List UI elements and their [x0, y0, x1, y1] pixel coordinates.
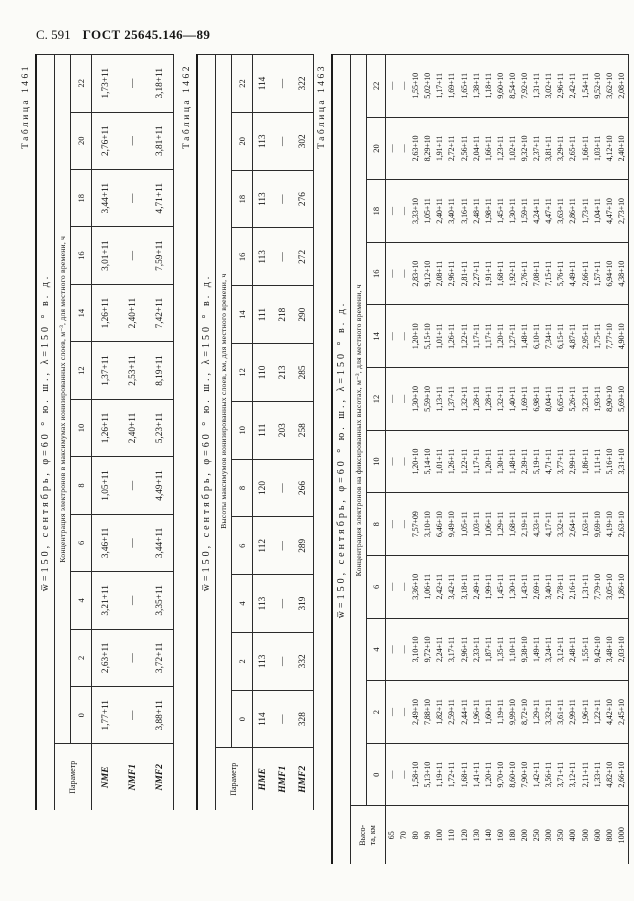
table-cell: 1,31+11: [580, 556, 592, 619]
hour-column-header: 22: [367, 55, 386, 118]
table-cell: 5,02+10: [422, 55, 434, 118]
table-cell: 113: [253, 632, 274, 690]
table-cell: 114: [253, 690, 274, 748]
table-1462-caption: Таблица 1462: [181, 54, 196, 810]
table-cell: —: [119, 687, 146, 744]
table-cell: 1,68+11: [495, 242, 507, 305]
document-page: С. 591ГОСТ 25645.146—89 Таблица 1461 w̅=…: [0, 27, 634, 864]
table-cell: 2,40+11: [119, 399, 146, 456]
table-cell: —: [398, 55, 410, 118]
table-cell: 1,01+11: [434, 430, 446, 493]
table-cell: 3,61+11: [555, 681, 567, 744]
table-cell: 1,22+11: [459, 305, 471, 368]
table-cell: —: [386, 180, 399, 243]
unit-header: Высоты максимумов ионизированных слоев, …: [216, 55, 232, 749]
table-cell: 3,02+11: [543, 55, 555, 118]
table-cell: 6,46+10: [434, 493, 446, 556]
row-label: 110: [446, 806, 458, 864]
table-cell: —: [398, 180, 410, 243]
table-cell: 3,36+10: [410, 556, 422, 619]
table-cell: 3,81+11: [543, 117, 555, 180]
table-row: 5002,11+111,96+111,55+111,31+111,63+111,…: [580, 55, 592, 865]
row-label: HME: [253, 748, 274, 810]
table-row: 1101,72+112,59+113,17+113,42+119,49+101,…: [446, 55, 458, 865]
table-row: 70————————————: [398, 55, 410, 865]
table-cell: —: [273, 228, 293, 286]
table-cell: 1,17+11: [471, 305, 483, 368]
hour-column-header: 12: [367, 368, 386, 431]
table-title: w̅=150, сентябрь, φ=60 ° ю. ш., λ=150 ° …: [332, 55, 351, 865]
table-cell: 2,03+10: [616, 618, 629, 681]
table-cell: 8,60+10: [507, 743, 519, 806]
table-cell: 9,69+10: [592, 493, 604, 556]
table-cell: 1,66+11: [483, 117, 495, 180]
table-cell: 3,44+11: [146, 514, 174, 571]
hour-column-header: 6: [71, 514, 92, 571]
table-cell: 2,48+11: [567, 618, 579, 681]
table-cell: 7,88+10: [422, 681, 434, 744]
table-cell: 1,73+11: [92, 55, 120, 113]
row-label: 90: [422, 806, 434, 864]
table-cell: 2,40+10: [616, 117, 629, 180]
table-cell: 4,24+11: [531, 180, 543, 243]
table-cell: 3,44+11: [92, 169, 120, 226]
row-label: HMF2: [293, 748, 314, 810]
hour-column-header: 4: [232, 575, 253, 633]
table-cell: —: [273, 632, 293, 690]
table-cell: 3,32+11: [543, 681, 555, 744]
table-cell: 2,83+10: [410, 242, 422, 305]
table-cell: 2,37+11: [531, 117, 543, 180]
table-cell: 112: [253, 517, 274, 575]
table-cell: 1,22+11: [459, 430, 471, 493]
table-row: 1401,20+111,60+111,87+111,99+111,06+111,…: [483, 55, 495, 865]
table-cell: 6,10+11: [531, 305, 543, 368]
table-cell: 2,96+11: [555, 55, 567, 118]
table-cell: 1,93+11: [592, 368, 604, 431]
row-label: 180: [507, 806, 519, 864]
table-cell: 5,23+11: [146, 399, 174, 456]
table-cell: 328: [293, 690, 314, 748]
hour-column-header: 16: [232, 228, 253, 286]
table-cell: 3,46+11: [92, 514, 120, 571]
table-cell: 258: [293, 401, 314, 459]
table-cell: 1,13+11: [434, 368, 446, 431]
table-cell: 2,08+10: [616, 55, 629, 118]
row-label: 80: [410, 806, 422, 864]
table-row: 1001,19+111,82+112,24+112,42+116,46+101,…: [434, 55, 446, 865]
hour-column-header: 0: [367, 743, 386, 806]
table-cell: —: [398, 368, 410, 431]
table-cell: 9,72+10: [422, 618, 434, 681]
table-cell: 3,10+10: [410, 618, 422, 681]
table-cell: 2,42+11: [567, 55, 579, 118]
table-cell: 8,54+10: [507, 55, 519, 118]
table-cell: 113: [253, 228, 274, 286]
table-cell: 1,20+10: [410, 430, 422, 493]
table-cell: 1,98+11: [483, 180, 495, 243]
table-cell: —: [119, 55, 146, 113]
hour-column-header: 12: [232, 344, 253, 402]
table-cell: —: [119, 572, 146, 629]
row-header-label: Параметр: [216, 748, 253, 810]
table-1462: w̅=150, сентябрь, φ=60 ° ю. ш., λ=150 ° …: [196, 54, 314, 810]
table-row: NME1,77+112,63+113,21+113,46+111,05+111,…: [92, 55, 120, 811]
hour-column-header: 2: [232, 632, 253, 690]
table-cell: 6,65+11: [555, 368, 567, 431]
table-cell: 1,42+11: [531, 743, 543, 806]
hour-column-header: 2: [71, 629, 92, 686]
table-cell: 4,49+11: [567, 242, 579, 305]
table-row: HMF1—————203213218————: [273, 55, 293, 811]
table-cell: —: [398, 305, 410, 368]
table-cell: 3,56+11: [543, 743, 555, 806]
table-cell: 4,33+11: [531, 493, 543, 556]
table-cell: 1,54+11: [580, 55, 592, 118]
table-row: 10002,66+102,45+102,03+101,86+102,63+103…: [616, 55, 629, 865]
table-cell: 5,69+10: [616, 368, 629, 431]
table-cell: 1,45+11: [495, 180, 507, 243]
table-cell: 2,96+11: [459, 618, 471, 681]
table-row: 1201,68+112,44+112,96+113,18+111,05+111,…: [459, 55, 471, 865]
table-cell: 5,13+10: [422, 743, 434, 806]
table-cell: 5,76+11: [555, 242, 567, 305]
table-1461: w̅=150, сентябрь, φ=60 ° ю. ш., λ=150 ° …: [35, 54, 174, 810]
table-cell: 2,95+11: [580, 305, 592, 368]
table-cell: 4,90+10: [616, 305, 629, 368]
table-cell: 4,17+11: [543, 493, 555, 556]
table-row: NMF1—————2,40+112,53+112,40+11————: [119, 55, 146, 811]
table-cell: 1,30+11: [495, 430, 507, 493]
table-cell: 1,65+11: [459, 55, 471, 118]
table-cell: 218: [273, 286, 293, 344]
table-cell: 3,42+11: [446, 556, 458, 619]
table-cell: 2,59+11: [446, 681, 458, 744]
table-1462-rotated-area: Таблица 1462 w̅=150, сентябрь, φ=60 ° ю.…: [181, 54, 314, 810]
table-cell: 2,08+11: [434, 242, 446, 305]
table-cell: 1,19+11: [495, 681, 507, 744]
hour-column-header: 12: [71, 342, 92, 399]
table-cell: 1,05+11: [92, 457, 120, 514]
page-header: С. 591ГОСТ 25645.146—89: [36, 27, 634, 43]
table-cell: 2,96+11: [446, 242, 458, 305]
table-cell: 2,56+11: [459, 117, 471, 180]
hour-column-header: 4: [71, 572, 92, 629]
table-cell: 3,12+11: [555, 618, 567, 681]
table-cell: 1,48+11: [507, 430, 519, 493]
hour-column-header: 0: [232, 690, 253, 748]
hour-column-header: 22: [232, 55, 253, 113]
table-cell: 1,19+11: [434, 743, 446, 806]
table-1463: w̅=150, сентябрь, φ=60 ° ю. ш., λ=150 ° …: [331, 54, 629, 864]
table-cell: 1,20+11: [483, 743, 495, 806]
table-cell: 9,99+10: [507, 681, 519, 744]
table-cell: 322: [293, 55, 314, 113]
table-cell: 1,28+11: [483, 368, 495, 431]
table-cell: 5,19+11: [531, 430, 543, 493]
table-cell: 5,26+11: [567, 368, 579, 431]
table-cell: 2,40+11: [434, 180, 446, 243]
table-cell: 5,14+10: [422, 430, 434, 493]
table-cell: 3,16+11: [459, 180, 471, 243]
table-cell: 1,01+11: [434, 305, 446, 368]
row-label: 1000: [616, 806, 629, 864]
table-cell: 1,91+11: [483, 242, 495, 305]
table-cell: 3,23+11: [580, 368, 592, 431]
table-cell: 1,05+11: [459, 493, 471, 556]
table-cell: 1,75+11: [592, 305, 604, 368]
hour-column-header: 16: [367, 242, 386, 305]
row-label: 160: [495, 806, 507, 864]
table-1463-caption: Таблица 1463: [316, 54, 331, 864]
table-cell: 3,33+10: [410, 180, 422, 243]
table-cell: 4,71+11: [543, 430, 555, 493]
row-label: 140: [483, 806, 495, 864]
table-row: 65————————————: [386, 55, 399, 865]
table-row: 2501,42+111,29+111,49+112,69+114,33+115,…: [531, 55, 543, 865]
table-cell: 2,86+11: [567, 180, 579, 243]
table-cell: 203: [273, 401, 293, 459]
table-cell: 1,96+11: [471, 681, 483, 744]
table-cell: 1,17+11: [483, 305, 495, 368]
table-cell: —: [273, 55, 293, 113]
table-cell: 1,77+11: [92, 687, 120, 744]
table-cell: —: [386, 55, 399, 118]
row-label: 500: [580, 806, 592, 864]
table-cell: 7,08+11: [531, 242, 543, 305]
table-cell: 1,68+11: [507, 493, 519, 556]
table-cell: —: [398, 117, 410, 180]
table-cell: —: [398, 681, 410, 744]
table-cell: 2,44+11: [459, 681, 471, 744]
table-title: w̅=150, сентябрь, φ=60 ° ю. ш., λ=150 ° …: [197, 55, 216, 811]
table-cell: 2,63+10: [616, 493, 629, 556]
table-cell: 1,22+11: [592, 681, 604, 744]
table-cell: 1,05+11: [422, 180, 434, 243]
row-label: NME: [92, 744, 120, 810]
table-cell: 4,82+10: [604, 743, 616, 806]
table-cell: 2,63+11: [92, 629, 120, 686]
table-cell: —: [398, 242, 410, 305]
table-cell: 3,63+11: [555, 180, 567, 243]
table-cell: 1,06+11: [483, 493, 495, 556]
table-cell: 6,98+11: [531, 368, 543, 431]
table-cell: 3,48+10: [604, 618, 616, 681]
table-cell: 1,92+11: [507, 242, 519, 305]
table-cell: 285: [293, 344, 314, 402]
table-cell: 1,58+10: [410, 743, 422, 806]
table-cell: 2,65+11: [567, 117, 579, 180]
table-cell: 110: [253, 344, 274, 402]
table-cell: 7,59+11: [146, 227, 174, 284]
table-cell: 2,81+11: [459, 242, 471, 305]
table-cell: 2,04+11: [471, 117, 483, 180]
table-cell: 1,66+11: [580, 117, 592, 180]
table-cell: 1,38+11: [471, 55, 483, 118]
table-cell: 1,48+11: [519, 305, 531, 368]
table-cell: 1,28+11: [471, 368, 483, 431]
table-cell: 1,59+11: [519, 180, 531, 243]
hour-column-header: 20: [232, 112, 253, 170]
table-cell: 1,35+11: [495, 618, 507, 681]
table-cell: 1,43+11: [519, 556, 531, 619]
table-cell: 114: [253, 55, 274, 113]
table-cell: 3,12+11: [567, 743, 579, 806]
table-cell: —: [398, 556, 410, 619]
table-cell: 272: [293, 228, 314, 286]
table-cell: 4,19+10: [604, 493, 616, 556]
table-cell: —: [273, 690, 293, 748]
table-cell: 2,72+11: [446, 117, 458, 180]
table-cell: 2,45+10: [616, 681, 629, 744]
table-cell: 1,33+11: [592, 743, 604, 806]
table-cell: 1,37+11: [446, 368, 458, 431]
hour-column-header: 8: [71, 457, 92, 514]
tables-row: Таблица 1461 w̅=150, сентябрь, φ=60 ° ю.…: [0, 54, 634, 864]
table-cell: 5,16+10: [604, 430, 616, 493]
table-cell: 2,99+11: [567, 430, 579, 493]
table-cell: 4,47+11: [543, 180, 555, 243]
row-label: HMF1: [273, 748, 293, 810]
table-cell: —: [119, 629, 146, 686]
table-cell: 3,21+11: [92, 572, 120, 629]
table-cell: 1,57+11: [592, 242, 604, 305]
table-cell: 1,40+11: [507, 368, 519, 431]
table-cell: 2,16+11: [567, 556, 579, 619]
table-cell: 1,02+11: [507, 117, 519, 180]
table-cell: 1,45+11: [495, 556, 507, 619]
table-cell: 1,20+10: [410, 305, 422, 368]
table-cell: —: [398, 430, 410, 493]
table-cell: 1,55+11: [580, 618, 592, 681]
table-cell: 3,10+10: [422, 493, 434, 556]
table-cell: —: [119, 514, 146, 571]
table-cell: 4,71+11: [146, 169, 174, 226]
table-cell: 2,27+11: [471, 242, 483, 305]
table-row: 8004,82+104,42+103,48+103,05+104,19+105,…: [604, 55, 616, 865]
table-cell: 7,92+10: [519, 55, 531, 118]
table-cell: 9,52+10: [592, 55, 604, 118]
row-label: 65: [386, 806, 399, 864]
table-cell: —: [119, 227, 146, 284]
table-cell: 1,20+11: [483, 430, 495, 493]
table-cell: 3,32+11: [555, 493, 567, 556]
table-cell: 9,42+10: [592, 618, 604, 681]
table-cell: 4,49+11: [146, 457, 174, 514]
table-cell: 1,63+11: [580, 493, 592, 556]
table-cell: 3,72+11: [146, 629, 174, 686]
hour-column-header: 8: [367, 493, 386, 556]
table-cell: 111: [253, 286, 274, 344]
table-cell: 8,72+10: [519, 681, 531, 744]
table-cell: 2,66+11: [580, 242, 592, 305]
table-row: 1609,70+101,19+111,35+111,45+111,29+111,…: [495, 55, 507, 865]
row-label: 100: [434, 806, 446, 864]
table-cell: 9,60+10: [495, 55, 507, 118]
table-cell: 2,69+11: [531, 556, 543, 619]
table-cell: 9,12+10: [422, 242, 434, 305]
table-cell: 1,96+11: [580, 681, 592, 744]
table-cell: 1,55+10: [410, 55, 422, 118]
hour-column-header: 18: [367, 180, 386, 243]
table-cell: 2,78+11: [555, 556, 567, 619]
table-cell: 2,99+11: [567, 681, 579, 744]
table-row: 2007,90+108,72+109,38+101,43+112,19+112,…: [519, 55, 531, 865]
table-cell: 1,26+11: [446, 305, 458, 368]
table-cell: 3,01+11: [92, 227, 120, 284]
table-cell: 1,17+11: [434, 55, 446, 118]
table-cell: 2,11+11: [580, 743, 592, 806]
table-cell: 9,32+10: [519, 117, 531, 180]
table-cell: —: [386, 368, 399, 431]
table-1461-caption: Таблица 1461: [20, 54, 35, 810]
table-cell: 1,17+11: [471, 430, 483, 493]
table-cell: —: [386, 556, 399, 619]
table-cell: 3,77+11: [555, 430, 567, 493]
table-cell: 4,47+10: [604, 180, 616, 243]
table-cell: 3,40+11: [543, 556, 555, 619]
table-cell: 8,29+10: [422, 117, 434, 180]
table-cell: 6,94+10: [604, 242, 616, 305]
table-cell: 2,33+11: [471, 618, 483, 681]
table-cell: 1,30+11: [507, 180, 519, 243]
table-cell: —: [386, 117, 399, 180]
table-cell: —: [119, 169, 146, 226]
row-label: 120: [459, 806, 471, 864]
table-cell: 1,23+11: [495, 117, 507, 180]
table-cell: 2,63+10: [410, 117, 422, 180]
table-cell: 1,20+11: [495, 305, 507, 368]
table-cell: 276: [293, 170, 314, 228]
table-cell: 3,18+11: [459, 556, 471, 619]
table-cell: 7,57+09: [410, 493, 422, 556]
table-cell: 4,38+10: [616, 242, 629, 305]
table-cell: 3,81+11: [146, 112, 174, 169]
table-cell: 1,69+11: [446, 55, 458, 118]
table-cell: —: [273, 459, 293, 517]
table-cell: 1,87+11: [483, 618, 495, 681]
table-cell: 120: [253, 459, 274, 517]
table-row: 905,13+107,88+109,72+101,06+113,10+105,1…: [422, 55, 434, 865]
table-cell: 266: [293, 459, 314, 517]
hour-column-header: 18: [71, 169, 92, 226]
table-cell: 1,37+11: [92, 342, 120, 399]
table-cell: 289: [293, 517, 314, 575]
table-cell: 2,19+11: [519, 493, 531, 556]
table-cell: 3,29+11: [555, 117, 567, 180]
table-cell: —: [386, 242, 399, 305]
table-cell: 2,42+11: [434, 556, 446, 619]
hour-column-header: 20: [367, 117, 386, 180]
table-cell: 7,15+11: [543, 242, 555, 305]
table-cell: 9,38+10: [519, 618, 531, 681]
table-cell: 1,11+11: [592, 430, 604, 493]
unit-header: Концентрация электронов в максимумах ион…: [55, 55, 71, 745]
table-cell: 2,39+11: [519, 430, 531, 493]
table-cell: 1,69+11: [519, 368, 531, 431]
row-header-label: Параметр: [55, 744, 92, 810]
row-label: 800: [604, 806, 616, 864]
table-title: w̅=150, сентябрь, φ=60 ° ю. ш., λ=150 ° …: [36, 55, 55, 811]
table-cell: 2,48+11: [471, 180, 483, 243]
table-cell: 332: [293, 632, 314, 690]
table-cell: —: [386, 430, 399, 493]
table-cell: 1,41+11: [471, 743, 483, 806]
hour-column-header: 22: [71, 55, 92, 113]
table-cell: 7,77+10: [604, 305, 616, 368]
row-label: 250: [531, 806, 543, 864]
row-label: 200: [519, 806, 531, 864]
